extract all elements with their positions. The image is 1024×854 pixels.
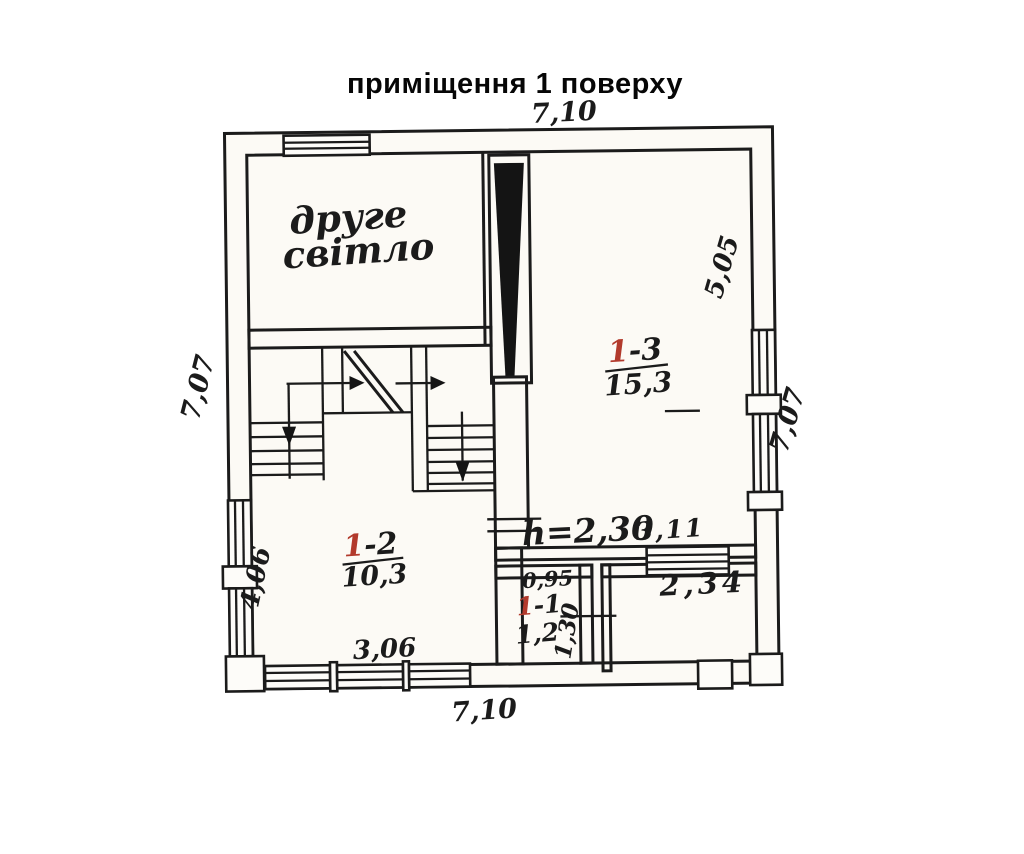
room-1-2-number-red: 1	[342, 528, 365, 564]
floor-plan-drawing: приміщення 1 поверху	[0, 0, 1024, 854]
dimension-room12-width: 3,06	[352, 633, 417, 666]
room-1-2-number-suffix: -2	[363, 526, 399, 563]
floor-plan-page: приміщення 1 поверху	[0, 0, 1024, 854]
stair-landing-edge	[323, 412, 412, 413]
dimension-top-width: 7,10	[530, 96, 597, 130]
room-1-3-area: 15,3	[603, 365, 673, 402]
stair-tread-upper-1	[342, 347, 343, 413]
room-1-3-number: 1-3	[607, 332, 663, 370]
room-1-3-number-suffix: -3	[628, 332, 664, 369]
window-top	[284, 135, 370, 156]
dimension-porch-width: 2,34	[658, 565, 747, 603]
room-1-1-area: 1,2	[514, 617, 560, 649]
room-1-1-label: 1-1 1,2	[512, 589, 565, 650]
room-1-2-area: 10,3	[341, 559, 409, 594]
window-right-upper	[752, 330, 776, 395]
window-bottom-2	[337, 664, 403, 688]
window-right-sill-block	[748, 492, 782, 510]
window-bottom-1	[265, 665, 330, 689]
dimension-hall-width: 0,95	[521, 565, 574, 593]
dimension-bottom-width: 7,10	[450, 693, 518, 728]
pillar-bottom-mid	[698, 660, 732, 688]
room-1-3-number-red: 1	[607, 334, 630, 370]
room-1-1-number-suffix: -1	[533, 589, 563, 620]
dimension-room13-width: 3,11	[635, 513, 706, 546]
window-bottom-3	[409, 664, 470, 688]
corner-pillar-bottom-left	[226, 656, 264, 691]
corner-pillar-bottom-right	[750, 654, 782, 685]
dimension-left-height: 7,07	[175, 352, 221, 424]
page-title: приміщення 1 поверху	[347, 68, 683, 100]
